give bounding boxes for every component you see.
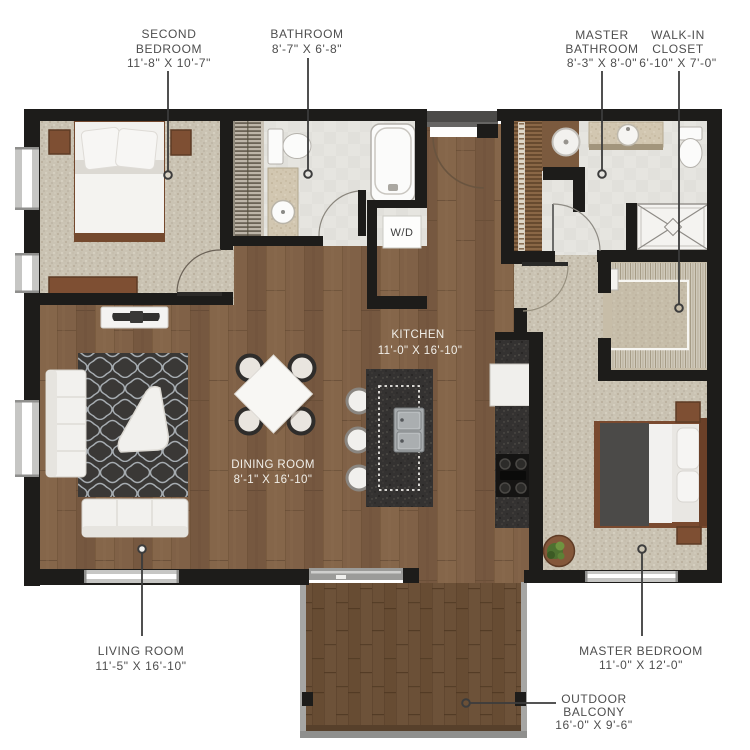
svg-text:BATHROOM: BATHROOM (565, 42, 638, 56)
svg-text:BATHROOM: BATHROOM (270, 27, 343, 41)
svg-text:MASTER: MASTER (575, 28, 629, 42)
svg-text:CLOSET: CLOSET (652, 42, 704, 56)
svg-text:BALCONY: BALCONY (563, 705, 625, 719)
svg-text:DINING ROOM: DINING ROOM (231, 459, 315, 471)
svg-text:MASTER BEDROOM: MASTER BEDROOM (579, 644, 703, 658)
svg-text:8'-1" X 16'-10": 8'-1" X 16'-10" (234, 474, 313, 486)
svg-text:11'-8" X 10'-7": 11'-8" X 10'-7" (127, 56, 211, 70)
svg-text:SECOND: SECOND (142, 27, 197, 41)
svg-text:16'-0" X 9'-6": 16'-0" X 9'-6" (555, 718, 633, 732)
svg-text:6'-10" X 7'-0": 6'-10" X 7'-0" (639, 56, 717, 70)
svg-text:8'-3" X 8'-0": 8'-3" X 8'-0" (567, 56, 637, 70)
svg-text:8'-7" X 6'-8": 8'-7" X 6'-8" (272, 42, 342, 56)
svg-text:KITCHEN: KITCHEN (391, 329, 444, 341)
svg-text:OUTDOOR: OUTDOOR (561, 692, 627, 706)
svg-text:11'-0" X 12'-0": 11'-0" X 12'-0" (599, 658, 683, 672)
svg-text:W/D: W/D (391, 227, 414, 239)
svg-text:LIVING ROOM: LIVING ROOM (98, 644, 185, 658)
svg-text:WALK-IN: WALK-IN (651, 28, 705, 42)
svg-text:BEDROOM: BEDROOM (136, 42, 202, 56)
svg-text:11'-0" X 16'-10": 11'-0" X 16'-10" (378, 345, 463, 357)
svg-text:11'-5" X 16'-10": 11'-5" X 16'-10" (95, 659, 186, 673)
